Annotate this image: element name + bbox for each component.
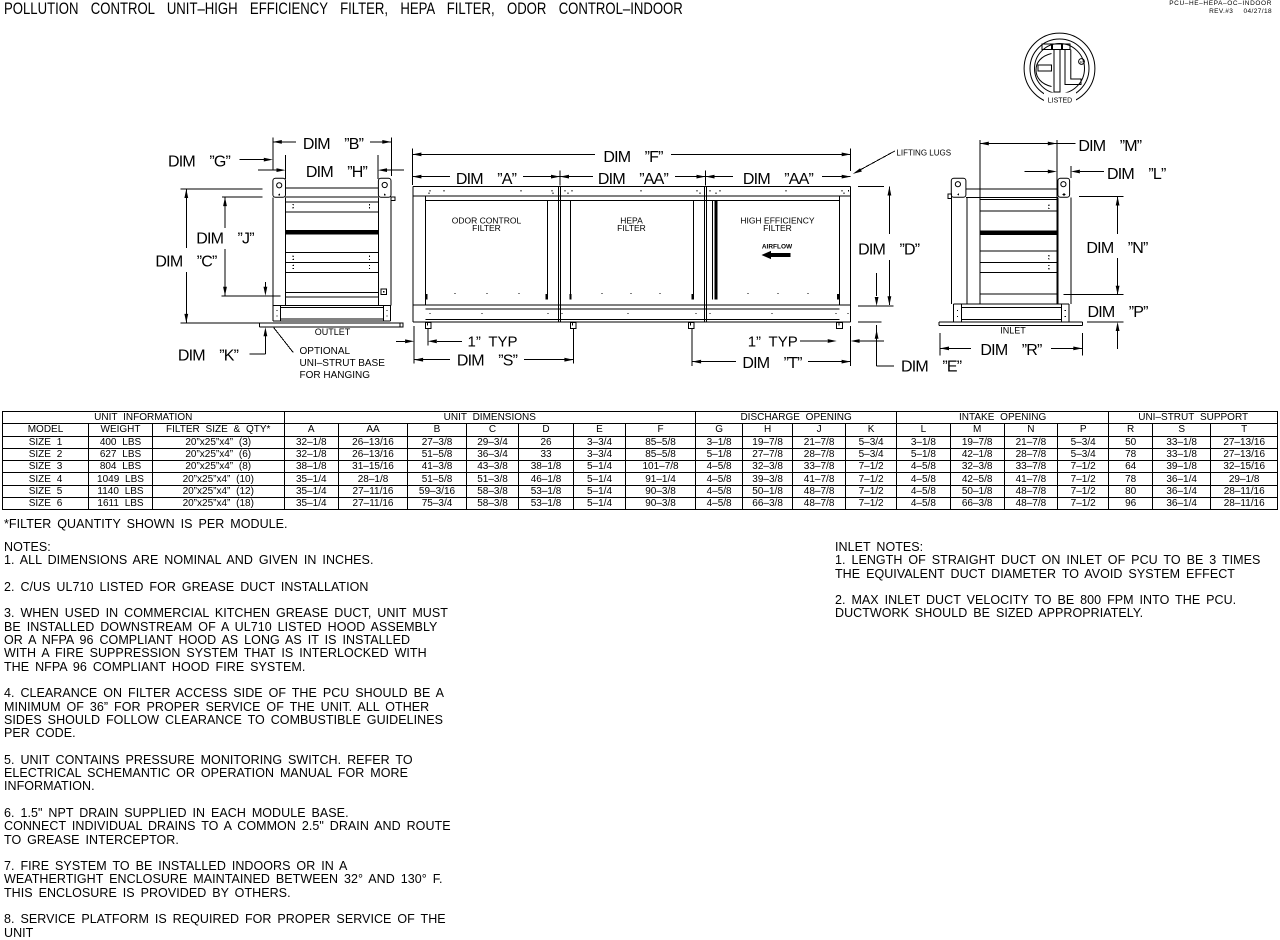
svg-text:1” TYP: 1” TYP: [468, 333, 518, 350]
svg-text:DIM ”L”: DIM ”L”: [1107, 166, 1166, 183]
svg-text:DIM ”K”: DIM ”K”: [178, 347, 239, 364]
svg-text:FILTER: FILTER: [763, 223, 792, 233]
svg-text:OUTLET: OUTLET: [315, 327, 351, 337]
svg-text:DIM ”P”: DIM ”P”: [1087, 304, 1148, 321]
svg-text:AIRFLOW: AIRFLOW: [762, 244, 793, 251]
svg-text:UNI–STRUT BASE: UNI–STRUT BASE: [300, 358, 386, 369]
svg-text:DIM ”AA”: DIM ”AA”: [743, 171, 814, 188]
svg-text:R: R: [1080, 60, 1083, 65]
svg-text:1” TYP: 1” TYP: [748, 333, 798, 350]
svg-text:DIM ”A”: DIM ”A”: [456, 171, 517, 188]
svg-text:DIM ”D”: DIM ”D”: [858, 242, 920, 259]
svg-text:DIM ”R”: DIM ”R”: [980, 342, 1042, 359]
svg-text:FOR HANGING: FOR HANGING: [300, 370, 371, 381]
svg-text:INLET: INLET: [1000, 326, 1026, 336]
svg-text:LISTED: LISTED: [1048, 98, 1073, 105]
svg-text:OPTIONAL: OPTIONAL: [300, 346, 351, 357]
svg-text:DIM ”AA”: DIM ”AA”: [598, 171, 669, 188]
svg-text:DIM ”H”: DIM ”H”: [306, 164, 368, 181]
svg-text:FILTER: FILTER: [472, 223, 501, 233]
svg-text:DIM ”J”: DIM ”J”: [196, 231, 254, 248]
svg-text:DIM ”C”: DIM ”C”: [155, 254, 217, 271]
svg-text:DIM ”M”: DIM ”M”: [1078, 138, 1141, 155]
svg-text:DIM ”G”: DIM ”G”: [168, 154, 231, 171]
svg-text:DIM ”T”: DIM ”T”: [742, 355, 802, 372]
svg-text:DIM ”F”: DIM ”F”: [603, 149, 663, 166]
svg-text:FILTER: FILTER: [617, 223, 646, 233]
svg-text:DIM ”B”: DIM ”B”: [303, 136, 364, 153]
svg-text:DIM ”N”: DIM ”N”: [1086, 240, 1148, 257]
svg-text:LIFTING LUGS: LIFTING LUGS: [896, 148, 951, 157]
svg-text:DIM ”S”: DIM ”S”: [457, 352, 518, 369]
svg-text:DIM ”E”: DIM ”E”: [901, 359, 962, 376]
